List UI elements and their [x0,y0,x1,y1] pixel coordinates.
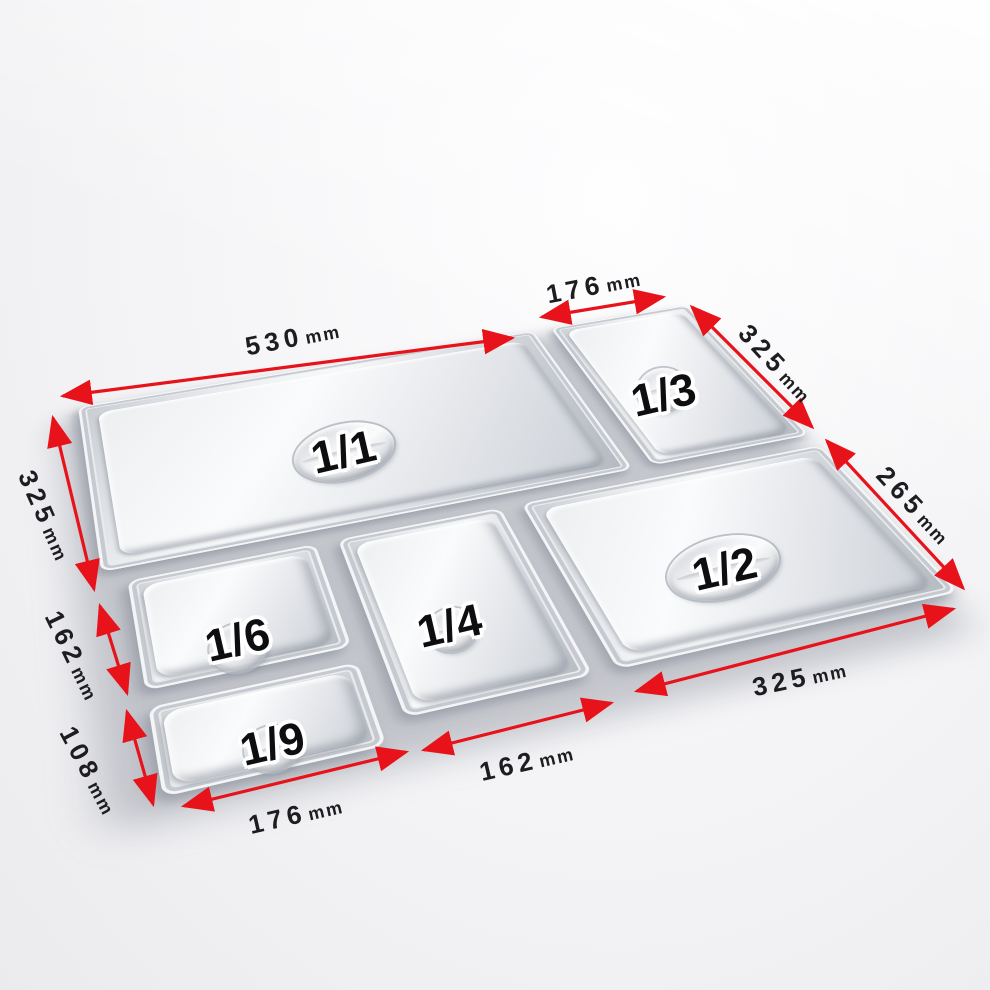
dim-value: 176 [246,798,310,840]
dim-label-176-top: 176mm [544,262,645,311]
lid-set-plan [78,305,975,804]
dim-value: 530 [243,321,306,362]
dim-unit: mm [537,744,577,772]
product-dimension-diagram: 530mm 176mm 325mm 265mm 325mm 162mm 108m… [0,0,990,990]
dim-unit: mm [306,797,346,825]
dim-unit: mm [605,269,644,296]
dim-value: 176 [544,269,607,310]
dim-label-530-top: 530mm [243,314,344,363]
dim-value: 162 [477,745,541,787]
dim-unit: mm [39,524,72,565]
dim-unit: mm [304,321,343,348]
dim-unit: mm [810,661,849,688]
dim-unit: mm [913,510,952,550]
dim-unit: mm [775,368,814,408]
dim-value: 325 [12,466,63,532]
